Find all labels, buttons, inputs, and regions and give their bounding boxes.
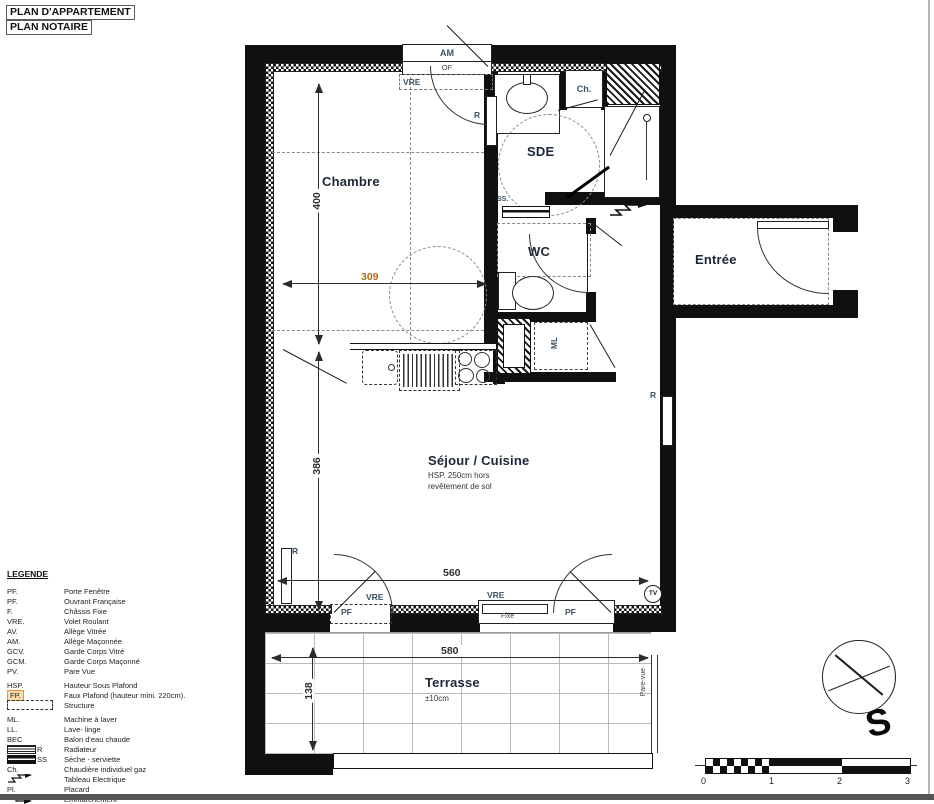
room-label-terrasse: Terrasse xyxy=(425,675,480,690)
legend-row: PF.Ouvrant Française xyxy=(7,596,237,606)
duct-inner xyxy=(503,324,525,368)
tv-outlet-icon: TV xyxy=(644,585,662,603)
wall-bottom-b xyxy=(390,612,480,632)
dim-label-560: 560 xyxy=(440,567,464,579)
legend-row: ML.Machine à laver xyxy=(7,714,237,724)
tv-label: TV xyxy=(649,590,657,597)
legend-title: LEGENDE xyxy=(7,569,237,579)
radiator-label: R xyxy=(474,110,480,120)
radiator xyxy=(662,396,673,446)
room-label-sde: SDE xyxy=(527,144,554,159)
turning-circle xyxy=(498,114,600,216)
wall-entree-top xyxy=(660,205,838,218)
radiator-label: R xyxy=(650,390,656,400)
legend-row: AV.Allège Vitrée xyxy=(7,626,237,636)
legend-row-towel: SSSèche - serviette xyxy=(7,754,237,764)
wall-right-upper xyxy=(660,63,676,205)
legend-row: AM.Allège Maçonnée xyxy=(7,636,237,646)
legend-row-fp: FP.Faux Plafond (hauteur mini. 220cm). xyxy=(7,690,237,700)
sink-drain-icon xyxy=(388,364,395,371)
wall-top-right xyxy=(490,45,676,63)
dim-label-400: 400 xyxy=(311,189,323,213)
ml-closet xyxy=(534,322,588,370)
vre-label: VRE xyxy=(487,590,504,600)
insulation-strip xyxy=(265,63,274,614)
radiator-label: R xyxy=(292,546,298,556)
am-label: AM xyxy=(440,48,454,58)
legend-row: GCM.Garde Corps Maçonné xyxy=(7,656,237,666)
ml-door-leaf xyxy=(590,324,616,368)
radiator-icon xyxy=(7,745,36,754)
room-label-wc: WC xyxy=(528,244,550,259)
pf-door-arc xyxy=(334,554,393,613)
scale-tick-3: 3 xyxy=(905,776,910,786)
structure-icon xyxy=(7,700,53,710)
burner-icon xyxy=(476,369,490,383)
terrace-parapet xyxy=(333,753,653,769)
wall-wc-stub-bottom xyxy=(586,292,596,316)
fp-highlight: FP. xyxy=(7,690,24,701)
scale-body xyxy=(705,758,911,774)
room-label-entree: Entrée xyxy=(695,252,737,267)
dim-label-309: 309 xyxy=(358,271,382,283)
page-edge-right xyxy=(928,0,930,800)
legend-row-radiator: RRadiateur xyxy=(7,744,237,754)
room-label-chambre: Chambre xyxy=(322,174,380,189)
legend-row: LL.Lave- linge xyxy=(7,724,237,734)
chambre-dashed-line xyxy=(272,152,484,153)
legend-row: HSP.Hauteur Sous Plafond xyxy=(7,680,237,690)
wall-right-lower xyxy=(660,305,676,632)
vre-label: VRE xyxy=(403,77,420,87)
dim-line-400 xyxy=(318,84,319,344)
electrical-panel-icon xyxy=(608,202,648,218)
sejour-note-1: HSP. 250cm hors xyxy=(428,470,490,481)
legend-row: PF.Porte Fenêtre xyxy=(7,586,237,596)
fixed-pane xyxy=(482,604,548,614)
dim-label-386: 386 xyxy=(311,454,323,478)
legend-row: PV.Pare Vue xyxy=(7,666,237,676)
wall-top-left xyxy=(245,45,402,63)
page-edge-bottom xyxy=(0,794,934,800)
wall-left xyxy=(245,45,265,755)
tap-icon xyxy=(523,74,531,85)
burner-icon xyxy=(474,352,490,368)
legend-row: GCV.Garde Corps Vitré xyxy=(7,646,237,656)
wall-hall-entree xyxy=(660,218,674,305)
wall-bottom-c xyxy=(613,612,676,632)
pare-vue-screen xyxy=(651,655,658,753)
radiator xyxy=(486,96,497,146)
ss-label: SS. xyxy=(497,196,508,203)
wall-bottom-a xyxy=(245,612,330,632)
vre-label: VRE xyxy=(366,592,383,602)
duct-hatch xyxy=(606,63,660,105)
insulation-strip xyxy=(390,605,482,614)
dim-label-580: 580 xyxy=(438,645,462,657)
window-door-arc xyxy=(430,66,489,125)
scale-tick-2: 2 xyxy=(837,776,842,786)
wall-entree-bottom xyxy=(660,305,838,318)
wall-terrace-corner xyxy=(245,753,333,775)
insulation-strip xyxy=(613,605,662,614)
pare-vue-label: Pare-vue xyxy=(640,668,647,696)
dim-line-560 xyxy=(278,580,648,581)
dim-label-138: 138 xyxy=(303,679,315,703)
toilet-bowl xyxy=(512,276,554,310)
shower-line-v xyxy=(646,122,647,180)
scale-tick-1: 1 xyxy=(769,776,774,786)
legend: LEGENDE PF.Porte Fenêtre PF.Ouvrant Fran… xyxy=(7,569,237,804)
fixe-label: Fixe xyxy=(501,613,514,620)
room-label-sejour: Séjour / Cuisine xyxy=(428,453,529,468)
legend-row-structure: Structure xyxy=(7,700,237,710)
pf-door-arc xyxy=(553,554,612,613)
legend-row: VRE.Volet Roulant xyxy=(7,616,237,626)
scale-seg-3 xyxy=(842,766,910,773)
electrical-panel-icon xyxy=(7,774,33,784)
washbasin xyxy=(506,82,548,114)
towel-radiator xyxy=(502,206,550,218)
scale-seg-2 xyxy=(774,759,842,766)
turning-circle xyxy=(389,246,487,344)
towel-radiator-icon xyxy=(7,755,36,764)
sejour-note-2: revêtement de sol xyxy=(428,481,492,492)
legend-row: Ch.Chaudière individuel gaz xyxy=(7,764,237,774)
hall-door-leaf xyxy=(592,222,623,246)
counter-back xyxy=(350,343,496,350)
legend-row: F.Châssis Fixe xyxy=(7,606,237,616)
wall-entree-jamb-top xyxy=(833,205,858,232)
scale-seg-1 xyxy=(706,759,774,773)
legend-row-electric: Tableau Electrique xyxy=(7,774,237,784)
boiler-label: Ch. xyxy=(577,84,592,94)
burner-icon xyxy=(458,368,474,383)
legend-row: BECBalon d'eau chaude xyxy=(7,734,237,744)
ml-label: ML xyxy=(549,337,559,349)
scale-tick-0: 0 xyxy=(701,776,706,786)
insulation-strip xyxy=(265,63,404,72)
shower-head-icon xyxy=(643,114,651,122)
terrasse-note: ±10cm xyxy=(425,693,449,704)
kitchen-drainer-unit xyxy=(399,350,460,391)
legend-row: Pl.Placard xyxy=(7,784,237,794)
dim-line-309 xyxy=(283,283,486,284)
dim-line-386 xyxy=(318,352,319,610)
dim-line-580 xyxy=(272,657,648,658)
floor-plan-page: { "header": { "title1": "PLAN D'APPARTEM… xyxy=(0,0,934,800)
burner-icon xyxy=(458,352,472,366)
